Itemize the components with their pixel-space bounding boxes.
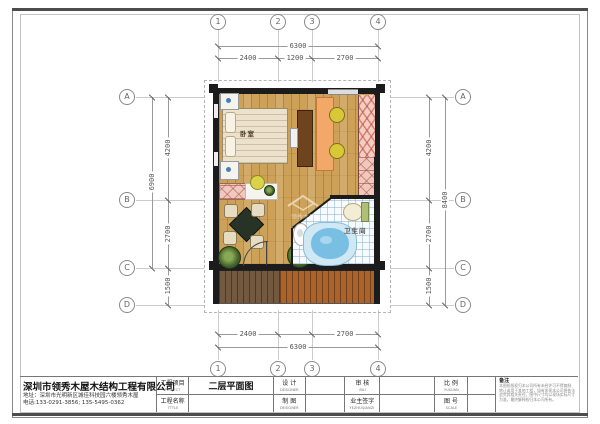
pillow: [225, 112, 236, 133]
company-phone: 电话:133-0291-3856; 135-5495-0362: [23, 400, 153, 407]
dim-bottom-seg1: 2400: [238, 330, 259, 338]
small-plant: [264, 185, 275, 196]
grid-bubble-A-left: A: [119, 89, 135, 105]
dim-left-seg2: 2700: [164, 224, 172, 245]
value-col-review: [379, 377, 434, 412]
window-left-1: [214, 104, 218, 118]
svg-text:领秀木屋: 领秀木屋: [291, 213, 315, 221]
dim-left-total: 6900: [148, 172, 156, 193]
field-col-scale: 比 例YUSUAN 图 号SCALE: [434, 377, 466, 412]
title-block-company: 深圳市领秀木屋木结构工程有限公司 地址：深圳市光明新区城佳科技园六楼领秀木屋 电…: [20, 377, 156, 412]
watermark: 领秀木屋: [280, 192, 326, 222]
grid-bubble-4-bottom: 4: [370, 361, 386, 377]
grid-bubble-B-right: B: [455, 192, 471, 208]
sheet-bottom-edge: [12, 413, 588, 416]
grid-bubble-D-right: D: [455, 297, 471, 313]
value-col-scale: [467, 377, 495, 412]
company-address: 地址：深圳市光明新区城佳科技园六楼领秀木屋: [23, 393, 153, 400]
table-lamp: [250, 175, 265, 190]
grid-bubble-3-top: 3: [304, 14, 320, 30]
tv-cabinet: [297, 110, 313, 167]
bathroom-label: 卫生间: [344, 225, 367, 235]
bedroom-label: 卧室: [240, 128, 255, 138]
deck-left: [219, 270, 280, 304]
pillow: [225, 136, 236, 157]
value-col-project: 二层平面图: [188, 377, 272, 412]
desk-chair-1: [329, 107, 345, 123]
grid-bubble-1-bottom: 1: [210, 361, 226, 377]
grid-line-3: [312, 30, 313, 82]
dining-chair: [251, 203, 265, 217]
label-owner-sign: 业主签字: [350, 398, 374, 405]
dim-left-seg1: 4200: [164, 138, 172, 159]
label-review: 审 核: [355, 380, 369, 387]
grid-bubble-2-top: 2: [270, 14, 286, 30]
label-project: 工程项目: [161, 380, 185, 387]
deck-right: [280, 270, 378, 304]
dining-chair: [223, 231, 237, 245]
dim-right-seg3: 1500: [425, 276, 433, 297]
grid-bubble-3-bottom: 3: [304, 361, 320, 377]
bathroom-wall-top: [330, 195, 374, 199]
grid-bubble-B-left: B: [119, 192, 135, 208]
label-scale: 比 例: [444, 380, 458, 387]
dim-top-total: 6300: [288, 42, 309, 50]
deck-edge: [219, 303, 378, 304]
grid-line-2: [278, 30, 279, 82]
sheet-title-text: 二层平面图: [208, 379, 253, 392]
dim-right-seg2: 2700: [425, 224, 433, 245]
wall-right-deck: [374, 270, 380, 304]
grid-bubble-1-top: 1: [210, 14, 226, 30]
door-leaf: [266, 241, 267, 265]
toilet: [343, 203, 363, 221]
dim-left-seg3: 1500: [164, 276, 172, 297]
dim-right-seg1: 4200: [425, 138, 433, 159]
value-col-designer: [305, 377, 344, 412]
grid-bubble-D-left: D: [119, 297, 135, 313]
label-drawing-no: 图 号: [444, 398, 458, 405]
desk-chair-2: [329, 143, 345, 159]
grid-bubble-4-top: 4: [370, 14, 386, 30]
staircase-upper: [358, 95, 375, 157]
staircase-lower: [358, 157, 374, 197]
grid-bubble-A-right: A: [455, 89, 471, 105]
grid-line-4: [378, 30, 379, 82]
label-design: 设 计: [282, 380, 296, 387]
grid-bubble-C-right: C: [455, 260, 471, 276]
grid-line-1: [218, 30, 219, 82]
field-col-project: 工程项目PROJECT 工程名称TTTLE: [156, 377, 188, 412]
corner-post-tl: [209, 84, 218, 93]
corner-post-br: [376, 261, 385, 270]
dim-top-seg2: 1200: [285, 54, 306, 62]
tv: [290, 128, 298, 148]
nightstand-lamp: [226, 167, 231, 172]
dim-bottom-seg2: 2700: [335, 330, 356, 338]
dim-right-total: 8400: [441, 190, 449, 211]
label-draft: 制 图: [282, 398, 296, 405]
window-top: [328, 89, 358, 95]
label-title: 工程名称: [161, 398, 185, 405]
corner-post-bl: [209, 261, 218, 270]
grid-bubble-2-bottom: 2: [270, 361, 286, 377]
corner-post-tr: [376, 84, 385, 93]
dim-bottom-total: 6300: [288, 343, 309, 351]
field-col-designer: 设 计DESIGNER 制 图DESIGNER: [273, 377, 305, 412]
dining-chair: [224, 204, 238, 218]
grid-bubble-C-left: C: [119, 260, 135, 276]
sheet-top-edge: [12, 8, 588, 11]
potted-plant-1: [218, 246, 241, 269]
wall-left-deck: [213, 270, 219, 304]
company-name: 深圳市领秀木屋木结构工程有限公司: [23, 382, 153, 393]
window-left-2: [214, 152, 218, 166]
dim-top-seg1: 2400: [238, 54, 259, 62]
dim-top-seg3: 2700: [335, 54, 356, 62]
nightstand-lamp: [226, 98, 231, 103]
field-col-review: 审 核BILI 业主签字YEZHUQIANZI: [344, 377, 379, 412]
drawing-sheet: 1 2 3 4 1 2 3 4 A B C D A B C D 6300 240…: [0, 0, 600, 424]
low-cabinet: [219, 183, 247, 200]
title-block: 深圳市领秀木屋木结构工程有限公司 地址：深圳市光明新区城佳科技园六楼领秀木屋 电…: [20, 376, 578, 412]
toilet-tank: [361, 202, 369, 222]
house-logo-icon: 领秀木屋: [280, 192, 326, 222]
water-highlight: [320, 236, 332, 244]
title-block-notes: 备注 本图纸版权归本公司所有未经许可不得复制、 转让或用于其他工程，如有发现本公…: [495, 377, 578, 412]
